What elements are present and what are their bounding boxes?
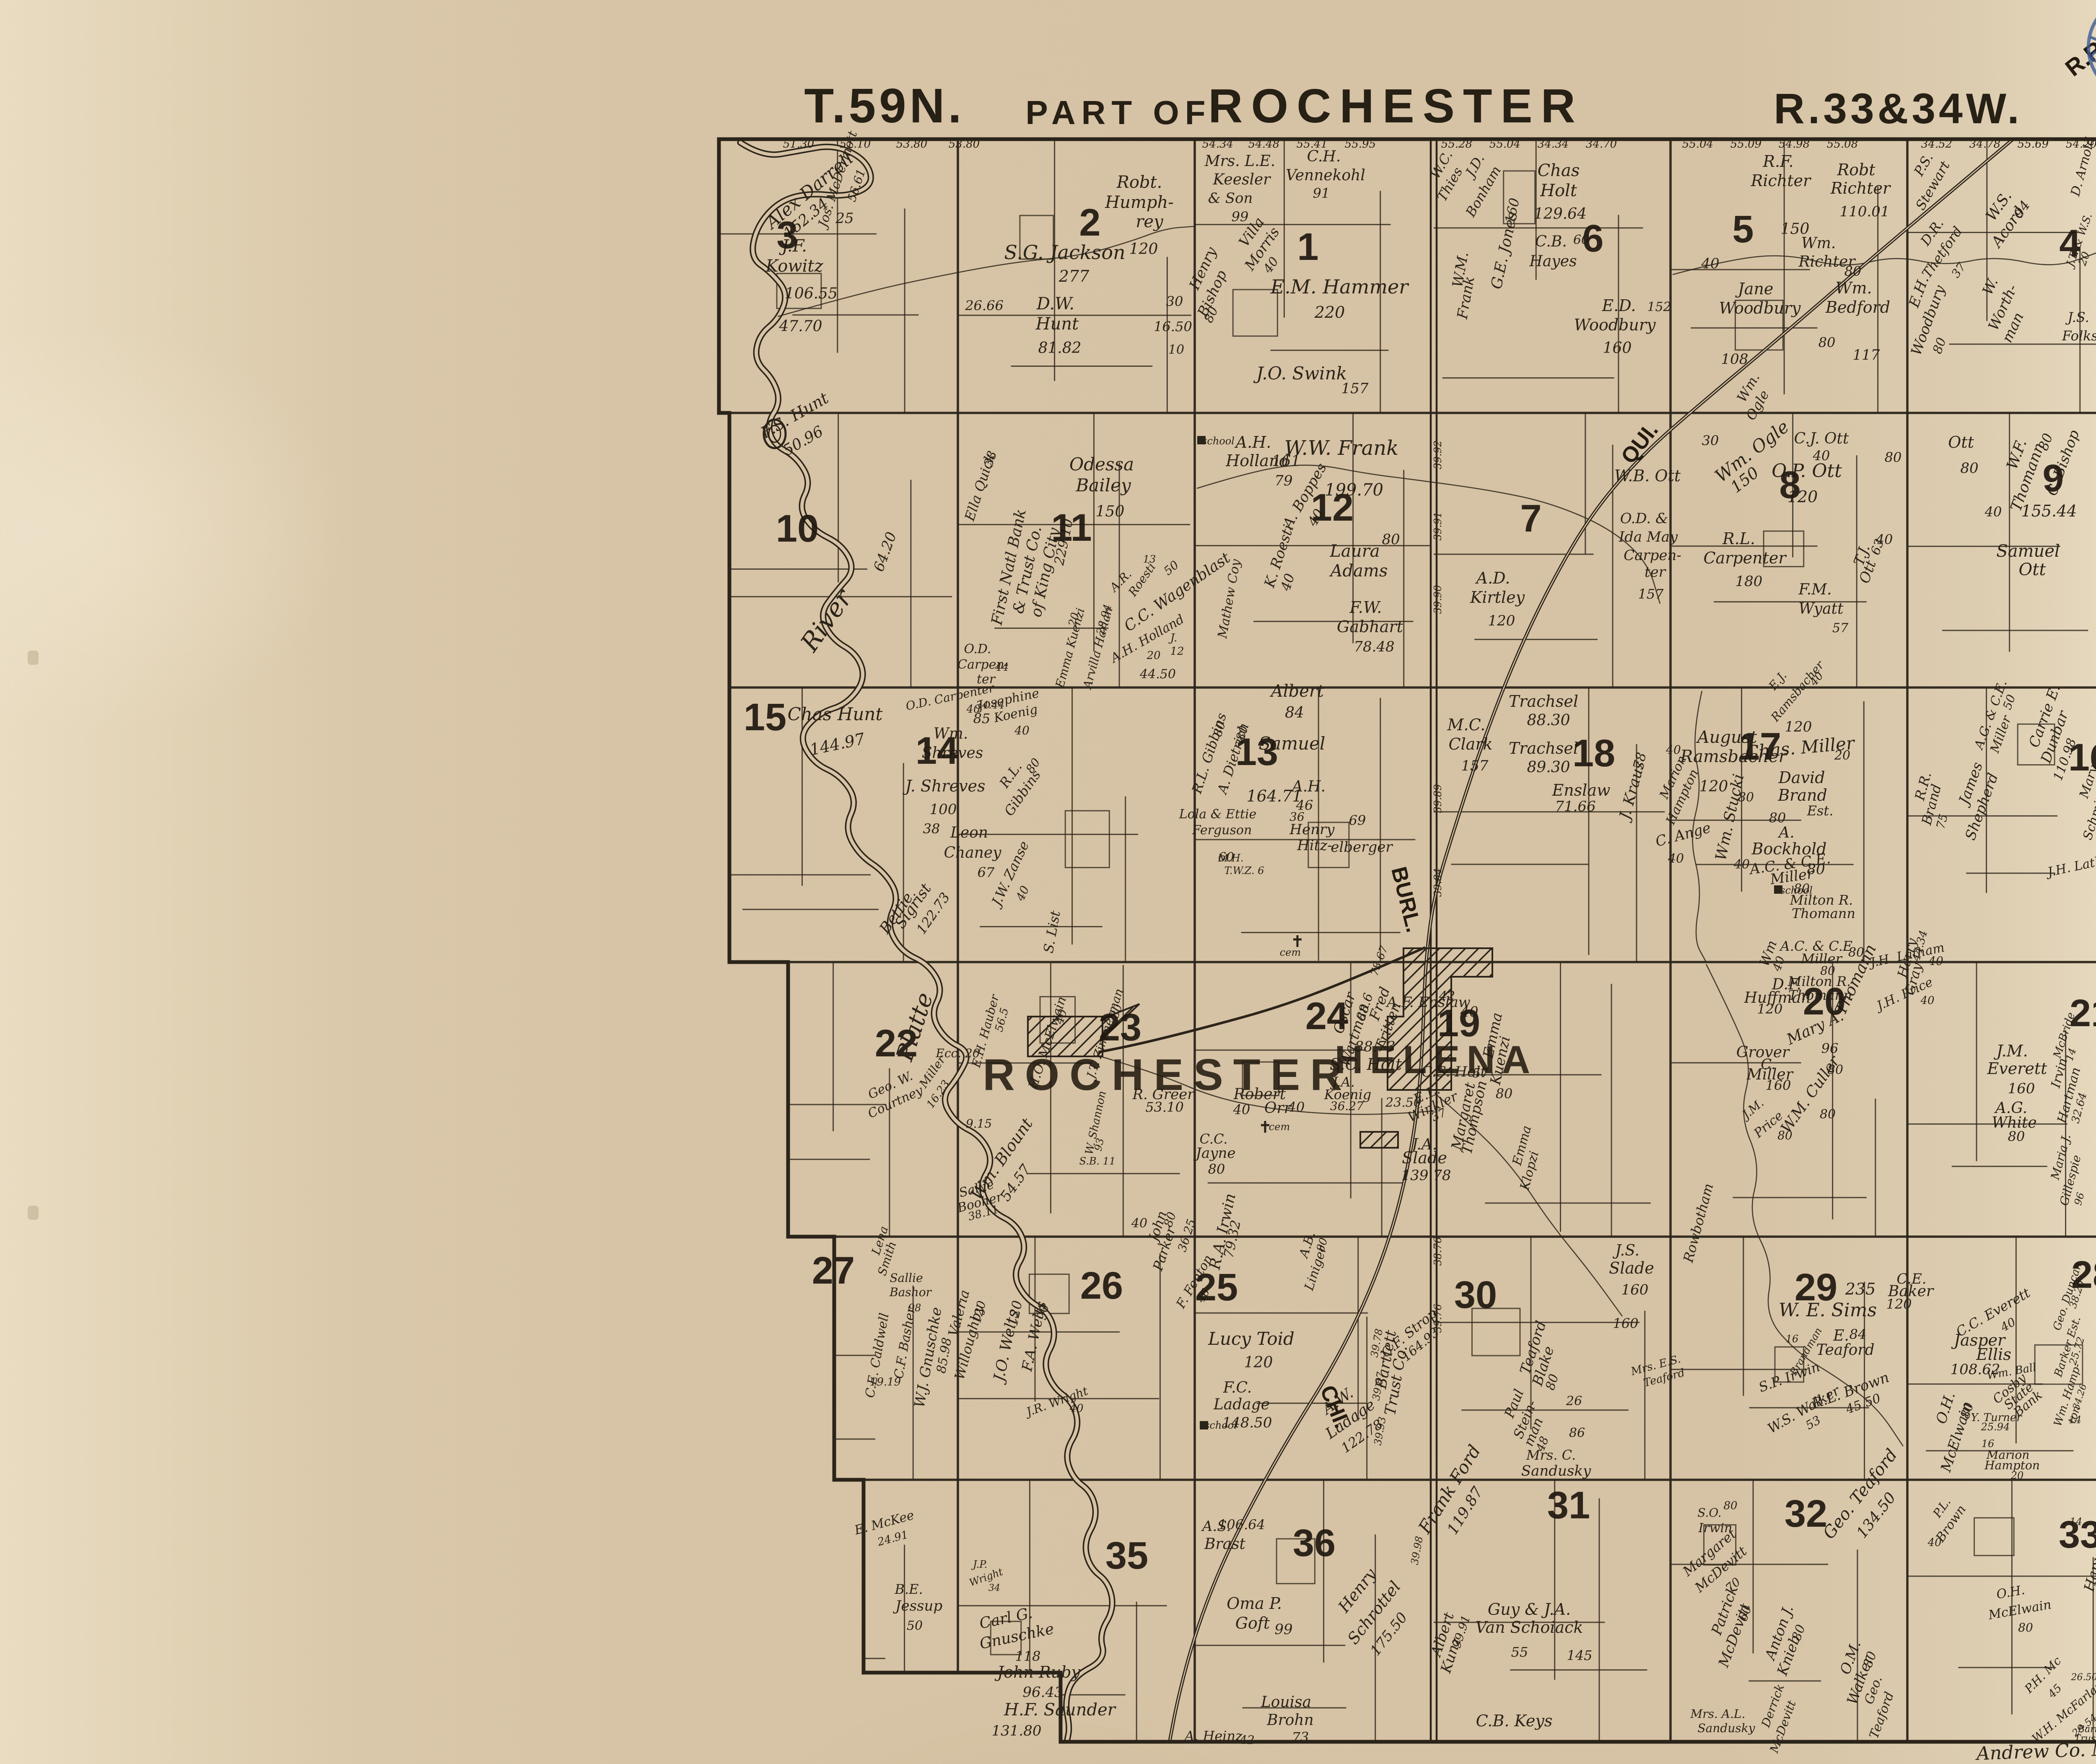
owner-label: 44.50 (1139, 667, 1176, 682)
owner-label: O.H. (1995, 1582, 2026, 1602)
map-title: T.59N. PART OF ROCHESTER R.33&34W. (804, 78, 2022, 133)
owner-label: Leon (950, 824, 988, 841)
owner-label: 91 (1313, 185, 1330, 201)
owner-label: 110.01 (1840, 203, 1890, 220)
owner-label: Keesler (1212, 171, 1271, 188)
owner-label: McElwain (1987, 1597, 2052, 1623)
section-number: 4 (2059, 222, 2080, 265)
owner-label: Clark (1448, 735, 1492, 753)
stamp-text-bottom: UNIV. OF MO. (0, 0, 2096, 99)
owner-label: 80 (1960, 460, 1978, 477)
owner-label: 80 (1723, 1499, 1737, 1512)
title-part-of: PART OF (1025, 94, 1211, 131)
owner-label: & Son (1208, 190, 1253, 207)
owner-label: A.H. (1291, 778, 1326, 795)
section-number: 9 (2042, 457, 2064, 500)
section-number: 8 (1779, 464, 1800, 506)
owner-label: 13 (1143, 553, 1156, 565)
owner-label: Ferguson (1192, 823, 1252, 838)
owner-label: Holt (1540, 181, 1577, 200)
owner-label: F.C. (1223, 1379, 1252, 1396)
owner-label: 120 (1886, 1296, 1912, 1312)
owner-label: E.D. (1601, 296, 1636, 315)
owner-label: Robt. (1116, 173, 1162, 192)
owner-label: 40 (1668, 851, 1684, 866)
survey-tick: 39.90 (1432, 585, 1444, 614)
owner-label: Jessup (893, 1598, 942, 1614)
owner-label: 80 (1738, 790, 1754, 805)
owner-label: 80 (1818, 335, 1836, 350)
owner-label: 120 (1757, 1001, 1782, 1017)
owner-label: 139.78 (1401, 1167, 1451, 1184)
owner-label: 80 (1844, 263, 1862, 279)
owner-label: Slade (1609, 1259, 1654, 1277)
owner-label: Albert (1269, 682, 1324, 701)
owner-label: 150 (1096, 503, 1125, 520)
owner-label: 84 (1850, 1326, 1867, 1342)
owner-label: Slade (1402, 1149, 1447, 1167)
owner-label: 80 (1930, 336, 1949, 356)
owner-label: 160 (1613, 1315, 1638, 1331)
owner-label: 20 (1834, 748, 1850, 763)
owner-label: Guy & J.A. (1488, 1600, 1571, 1619)
owner-label: 160 (1603, 340, 1632, 357)
section-number: 11 (1051, 506, 1092, 549)
owner-label: 80 (1885, 449, 1902, 465)
owner-label: Lola & Ettie (1179, 807, 1257, 822)
section-number: 13 (1235, 731, 1278, 773)
section-number: 7 (1520, 497, 1541, 540)
section-number: 5 (1732, 208, 1754, 251)
owner-label: J.P. (971, 1559, 987, 1570)
owner-label: 120 (1488, 612, 1515, 629)
owner-label: Kowitz (765, 257, 823, 276)
section-number: 25 (1195, 1266, 1238, 1309)
owner-label: 161 (1272, 453, 1301, 470)
owner-label: Wyatt (1799, 600, 1844, 617)
owner-label: Jane (1735, 280, 1774, 298)
owner-label: 157 (1461, 757, 1489, 774)
owner-label: 84 (1285, 704, 1304, 721)
owner-label: S.O. (1697, 1506, 1721, 1520)
owner-label: S. List (1040, 909, 1064, 954)
section-number: 10 (776, 507, 819, 550)
owner-label: C. Ange (1654, 820, 1713, 851)
owner-label: Ott (1948, 433, 1974, 451)
section-number: 18 (1572, 732, 1615, 775)
owner-label: 57 (1832, 621, 1849, 636)
owner-label: 16.50 (1154, 319, 1192, 335)
owner-label: 23.50 (1385, 1095, 1422, 1110)
school-label: school (1204, 1419, 1237, 1431)
owner-label: Bashor (889, 1285, 932, 1299)
owner-label: 86 (1569, 1426, 1585, 1440)
plat-map: Alex Darrell152.34J.F.Kowitz106.5547.70J… (0, 0, 2096, 1764)
section-number: 15 (744, 696, 786, 739)
owner-label: O.D. & (1620, 510, 1668, 527)
owner-label: Woodbury (1719, 299, 1801, 317)
owner-label: B.E. (894, 1581, 923, 1597)
section-number: 3 (776, 214, 798, 257)
section-number: 12 (1311, 486, 1354, 529)
owner-label: David (1778, 768, 1825, 787)
owner-label: 40 (1927, 1536, 1941, 1549)
owner-label: Teaford (1816, 1341, 1874, 1359)
owner-label: 80 (2008, 1128, 2025, 1144)
owner-label: Mrs. A.L. (1690, 1707, 1746, 1721)
owner-label: 40 (1984, 504, 2002, 520)
owner-label: W.W. Frank (1284, 436, 1399, 460)
owner-label: W.B. Ott (1614, 467, 1681, 485)
school-label: school (1780, 885, 1813, 896)
town-name: HELENA (1335, 1038, 1537, 1082)
owner-label: 108 (1721, 351, 1748, 368)
owner-label: 80 (1496, 1086, 1513, 1102)
owner-label: 34 (988, 1583, 1000, 1593)
owner-label: 78.67 (1368, 944, 1391, 978)
section-number: 17 (1738, 725, 1781, 768)
owner-label: elberger (1331, 839, 1393, 856)
section-number: 16 (2068, 736, 2096, 779)
owner-label: 157 (1341, 380, 1369, 397)
owner-label: Adams (1329, 561, 1388, 581)
owner-label: Sandusky (1521, 1463, 1591, 1479)
section-number: 36 (1293, 1522, 1336, 1564)
owner-label: rey (1136, 212, 1164, 231)
owner-label: 20 (2010, 1470, 2024, 1481)
owner-label: 106.55 (785, 285, 838, 302)
cemetery-label: cem (1269, 1121, 1290, 1133)
owner-label: 38 (923, 821, 940, 837)
owner-label: 69 (1349, 812, 1366, 828)
owner-label: 120 (1699, 778, 1728, 795)
owner-label: 80 (1769, 810, 1786, 826)
owner-label: 10 (1168, 342, 1184, 357)
owner-label: 180 (1735, 573, 1763, 590)
section-number: 31 (1547, 1484, 1590, 1527)
owner-label: Wm. (1801, 235, 1836, 252)
owner-label: Gabhart (1337, 617, 1403, 636)
owner-label: 25 (835, 210, 853, 227)
owner-label: 145 (1567, 1647, 1592, 1663)
owner-label: Vennekohl (1286, 167, 1365, 184)
title-name: ROCHESTER (1208, 80, 1584, 133)
owner-label: 40 (1287, 1099, 1305, 1115)
owner-label: 25.94 (1981, 1421, 2010, 1433)
owner-label: Rowbotham (1680, 1182, 1717, 1265)
owner-label: 78.48 (1354, 638, 1394, 655)
owner-label: 80 (1827, 1063, 1843, 1077)
owner-label: D.W. (1036, 294, 1074, 314)
owner-label: A.D. (1475, 569, 1510, 587)
owner-label: 129.64 (1534, 205, 1587, 223)
owner-label: 235 (1845, 1280, 1876, 1298)
section-number: 20 (1803, 980, 1846, 1023)
owner-label: W. (1979, 275, 2001, 298)
owner-label: Richter (1830, 179, 1891, 197)
owner-label: Bailey (1075, 475, 1131, 495)
owner-label: 80 (1023, 755, 1043, 776)
owner-label: Carpenter (1703, 549, 1787, 567)
owner-label: 26.50 (2071, 1672, 2096, 1683)
owner-label: A. (1777, 824, 1794, 841)
owner-label: 9.15 (966, 1117, 992, 1131)
owner-label: T.W.Z. 6 (1224, 865, 1264, 877)
section-number: 14 (916, 729, 958, 772)
owner-label: C.B. (1535, 233, 1567, 250)
owner-label: S.G. Jackson (1004, 241, 1125, 264)
section-number: 30 (1454, 1274, 1497, 1316)
owner-label: Sandusky (1697, 1721, 1755, 1735)
title-township: T.59N. (804, 78, 965, 133)
owner-label: Hunt (1035, 314, 1079, 334)
owner-label: 120 (1129, 241, 1158, 258)
owner-label: 55 (1511, 1644, 1528, 1660)
owner-label: Mrs. C. (1526, 1447, 1576, 1463)
owner-label: 40 (1733, 857, 1750, 872)
owner-label: 79 (1274, 472, 1292, 489)
owner-label: 80 (2018, 1621, 2033, 1634)
owner-label: Kirtley (1470, 588, 1525, 607)
owner-label: Jayne (1193, 1145, 1235, 1162)
owner-label: 100 (930, 801, 957, 818)
town-name: ROCHESTER (983, 1050, 1352, 1100)
owner-label: J.M. (1993, 1042, 2028, 1060)
owner-label: Henry (1289, 821, 1335, 838)
owner-label: Mrs. L.E. (1204, 153, 1276, 170)
owner-label: Trachsel (1509, 739, 1578, 757)
section-number: 29 (1795, 1266, 1837, 1309)
owner-label: J.H. Latham (2044, 850, 2096, 880)
owner-label: F.M. (1798, 581, 1831, 598)
owner-label: 120 (1244, 1354, 1273, 1371)
owner-label: Ott (2019, 560, 2047, 579)
owner-label: 50 (907, 1619, 923, 1633)
owner-label: J.O. Swink (1253, 363, 1347, 384)
title-range: R.33&34W. (1774, 85, 2023, 132)
survey-tick: 39.84 (1432, 868, 1444, 897)
survey-tick: 39.89 (1432, 784, 1444, 813)
owner-label: Bedford (1825, 298, 1890, 316)
owner-label: 40 (1665, 743, 1681, 757)
owner-label: 96 (2072, 1191, 2087, 1207)
owner-label: 64.20 (870, 530, 900, 574)
railroad-label: BURL. (1386, 864, 1426, 935)
owner-label: 88.30 (1527, 712, 1570, 729)
owner-label: 99 (1232, 209, 1249, 225)
owner-label: 120 (1004, 1299, 1025, 1328)
owner-label: 155.44 (2021, 502, 2077, 520)
owner-label: C.F. Basher (891, 1305, 918, 1380)
owner-label: Humph- (1105, 193, 1173, 212)
owner-label: Goft (1235, 1614, 1270, 1632)
owner-label: Wm. (1835, 279, 1872, 297)
owner-label: Brohn (1266, 1712, 1314, 1729)
owner-label: R.L. (1722, 529, 1755, 548)
owner-label: R.F. (1762, 152, 1793, 171)
owner-label: ter (1645, 564, 1666, 581)
owner-label: 42 (1439, 989, 1455, 1004)
owner-label: 71.66 (1555, 798, 1595, 815)
owner-label: Enslaw (1551, 781, 1610, 799)
survey-tick: 38.76 (1432, 1237, 1444, 1266)
owner-label: 80 (1777, 1128, 1792, 1142)
owner-label: 14 (2069, 1414, 2082, 1426)
owner-label: 30 (1702, 433, 1719, 449)
owner-label: M.H. (1218, 852, 1244, 864)
owner-label: 47.70 (778, 318, 822, 335)
owner-label: A.H. (1235, 433, 1271, 451)
owner-label: 80 (1848, 945, 1864, 960)
section-number: 21 (2070, 992, 2096, 1035)
owner-label: 12 (1170, 645, 1184, 658)
owner-label: Hitz- (1297, 837, 1332, 854)
survey-tick: 39.92 (1432, 441, 1444, 470)
owner-label: 30 (1166, 293, 1183, 309)
page-edge-marks (28, 651, 39, 1220)
owner-label: Van Schoiack (1476, 1618, 1583, 1637)
owner-label: Sallie (890, 1271, 923, 1285)
owner-label: J.S. (2065, 309, 2089, 325)
owner-label: Hayes (1529, 253, 1577, 270)
owner-label: S.P. Irwin (1756, 1359, 1822, 1396)
owner-label: Everett (1987, 1059, 2048, 1078)
owner-label: 96.43 (1022, 1684, 1063, 1701)
owner-label: Samuel (1996, 542, 2060, 561)
owner-label: Irwin (1698, 1521, 1733, 1536)
owner-label: C.B. Keys (1476, 1712, 1553, 1730)
library-stamp: LIBRARY UNIV. OF MO. (0, 0, 2096, 99)
owner-label: Lucy Toid (1208, 1328, 1294, 1349)
cemetery-label: cem (1280, 947, 1301, 958)
owner-label: Carpen- (1624, 547, 1681, 564)
owner-label: Ladage (1213, 1396, 1270, 1413)
owner-label: M.C. (1447, 716, 1486, 734)
owner-label: Oma P. (1227, 1594, 1282, 1613)
owner-label: Robt (1837, 161, 1876, 179)
owner-label: 120 (970, 1299, 989, 1324)
survey-tick: 39.91 (1432, 512, 1444, 541)
owner-label: 39.98 (1409, 1535, 1425, 1566)
owner-label: 26.66 (965, 298, 1004, 314)
owner-label: 40 (1014, 724, 1030, 737)
owner-label: Chas (1538, 161, 1580, 180)
section-number: 26 (1080, 1264, 1123, 1307)
owner-label: 40 (1876, 532, 1893, 547)
owner-label: S.B. 11 (1079, 1155, 1116, 1167)
owner-label: Brast (1204, 1536, 1246, 1553)
owner-label: 40 (1928, 954, 1943, 968)
owner-label: 80 (1820, 1107, 1836, 1122)
school-label: school (1202, 435, 1235, 447)
owner-label: 131.80 (992, 1722, 1042, 1739)
owner-label: J.S. (1612, 1242, 1639, 1259)
owner-label: J.M. (1738, 1096, 1767, 1123)
owner-label: F.W. (1349, 598, 1382, 617)
section-number: 1 (1297, 226, 1318, 268)
owner-label: 93 (1092, 1137, 1106, 1152)
owner-label: Thomann (1792, 905, 1855, 921)
owner-label: 157 (1638, 586, 1664, 602)
owner-label: C.H. (1307, 148, 1341, 165)
owner-label: W.S. Walker (1765, 1382, 1843, 1437)
section-number: 28 (2071, 1253, 2096, 1296)
owner-label: 50 (1161, 558, 1182, 578)
owner-label: O.D. (964, 642, 991, 656)
owner-label: 118 (1015, 1648, 1040, 1664)
owner-label: 160 (1621, 1281, 1649, 1298)
owner-label: 89.30 (1527, 759, 1570, 776)
owner-label: Louisa (1261, 1694, 1311, 1711)
owner-label: 40 (1701, 255, 1719, 272)
owner-label: 160 (1765, 1077, 1791, 1093)
town-block (1360, 1132, 1398, 1148)
owner-label: 80 (1208, 1161, 1225, 1177)
map-content: Alex Darrell152.34J.F.Kowitz106.5547.70J… (719, 25, 2096, 1755)
owner-label: 40 (1233, 1102, 1250, 1118)
owner-label: 220 (1314, 303, 1345, 322)
owner-label: 53.10 (1145, 1099, 1184, 1115)
owner-label: 16 (1786, 1333, 1799, 1345)
owner-label: 81.82 (1038, 340, 1081, 357)
owner-label: Woodbury (1574, 316, 1656, 334)
owner-label: Trachsel (1509, 692, 1578, 711)
cemetery-mark (1261, 1121, 1269, 1133)
owner-label: Richter (1751, 171, 1812, 190)
owner-label: 67 (978, 864, 995, 880)
owner-label: 40 (1920, 994, 1934, 1007)
owner-label: Odessa (1069, 454, 1134, 475)
owner-label: 152 (1647, 300, 1671, 314)
section-number: 24 (1305, 995, 1348, 1038)
section-number: 33 (2059, 1513, 2096, 1556)
owner-label: 40 (1069, 1402, 1083, 1415)
survey-tick: 39.76 (1432, 1304, 1444, 1333)
owner-label: 20 (1146, 649, 1160, 662)
scanned-plat-page: { "title": { "township": "T.59N.", "part… (0, 0, 2096, 1764)
owner-label: 40 (1013, 884, 1032, 903)
owner-label: Est. (1807, 803, 1834, 819)
owner-label: 117 (1853, 347, 1880, 363)
owner-label: 26 (1566, 1394, 1582, 1409)
owner-label: 144.97 (808, 729, 867, 759)
section-number: 6 (1582, 217, 1603, 260)
owner-label: Chas Hunt (788, 704, 883, 724)
owner-label: E.M. Hammer (1270, 275, 1410, 298)
section-number: 2 (1079, 201, 1100, 244)
cemetery-mark (1293, 935, 1302, 947)
owner-label: J. Shreves (902, 777, 985, 795)
owner-label: 106.64 (1218, 1517, 1265, 1533)
owner-label: Folks (2062, 328, 2096, 344)
section-number: 35 (1105, 1534, 1148, 1577)
section-number: 23 (1099, 1006, 1141, 1049)
section-number: 32 (1785, 1492, 1827, 1535)
owner-label: 160 (2008, 1080, 2035, 1097)
owner-label: 277 (1058, 267, 1090, 285)
owner-label: Ida May (1619, 529, 1678, 545)
owner-label: C.J. Ott (1794, 430, 1849, 447)
owner-label: 36.27 (1330, 1099, 1364, 1113)
owner-label: Laura (1329, 542, 1380, 561)
owner-label: Chaney (944, 844, 1001, 861)
owner-label: 40 (1131, 1216, 1147, 1231)
owner-label: 45 (2045, 1682, 2064, 1701)
owner-label: 120 (1785, 719, 1812, 735)
owner-label: 99 (1274, 1621, 1292, 1638)
owner-label: 44 (994, 661, 1009, 674)
owner-label: E.J. (1766, 669, 1789, 693)
